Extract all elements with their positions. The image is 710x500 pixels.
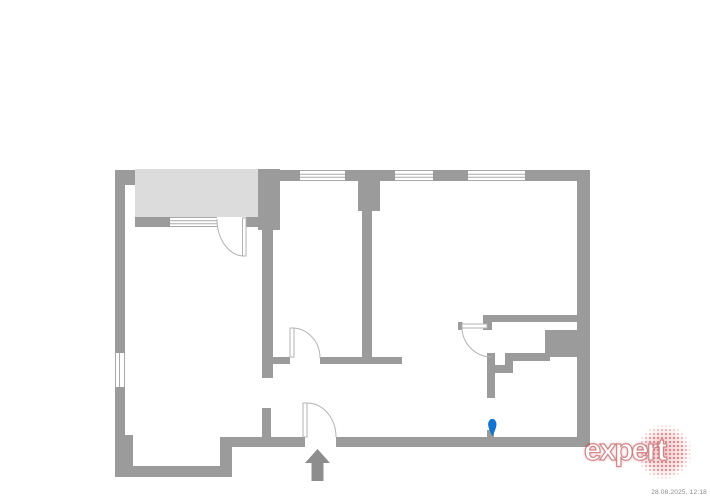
window-top-1 bbox=[300, 171, 345, 181]
window-top-3 bbox=[468, 171, 525, 181]
interior-wall-rooms bbox=[358, 181, 380, 357]
middle-room-door bbox=[290, 328, 320, 358]
window-top-2 bbox=[395, 171, 433, 181]
interior-wall-living-hall bbox=[262, 230, 273, 437]
bathroom-walls bbox=[458, 315, 577, 437]
entrance-arrow-icon bbox=[305, 449, 330, 481]
hallway-north-wall bbox=[273, 357, 402, 364]
scanned-floor-plan-page: expert 28.08.2025, 12:18 bbox=[0, 0, 710, 500]
balcony-door bbox=[217, 218, 246, 256]
balcony bbox=[135, 169, 258, 217]
balcony-band bbox=[135, 217, 258, 227]
balcony-window bbox=[170, 218, 217, 227]
floor-plan bbox=[0, 0, 710, 500]
print-timestamp: 28.08.2025, 12:18 bbox=[651, 489, 707, 496]
entrance-door bbox=[303, 403, 336, 437]
window-left-wall bbox=[116, 353, 125, 387]
